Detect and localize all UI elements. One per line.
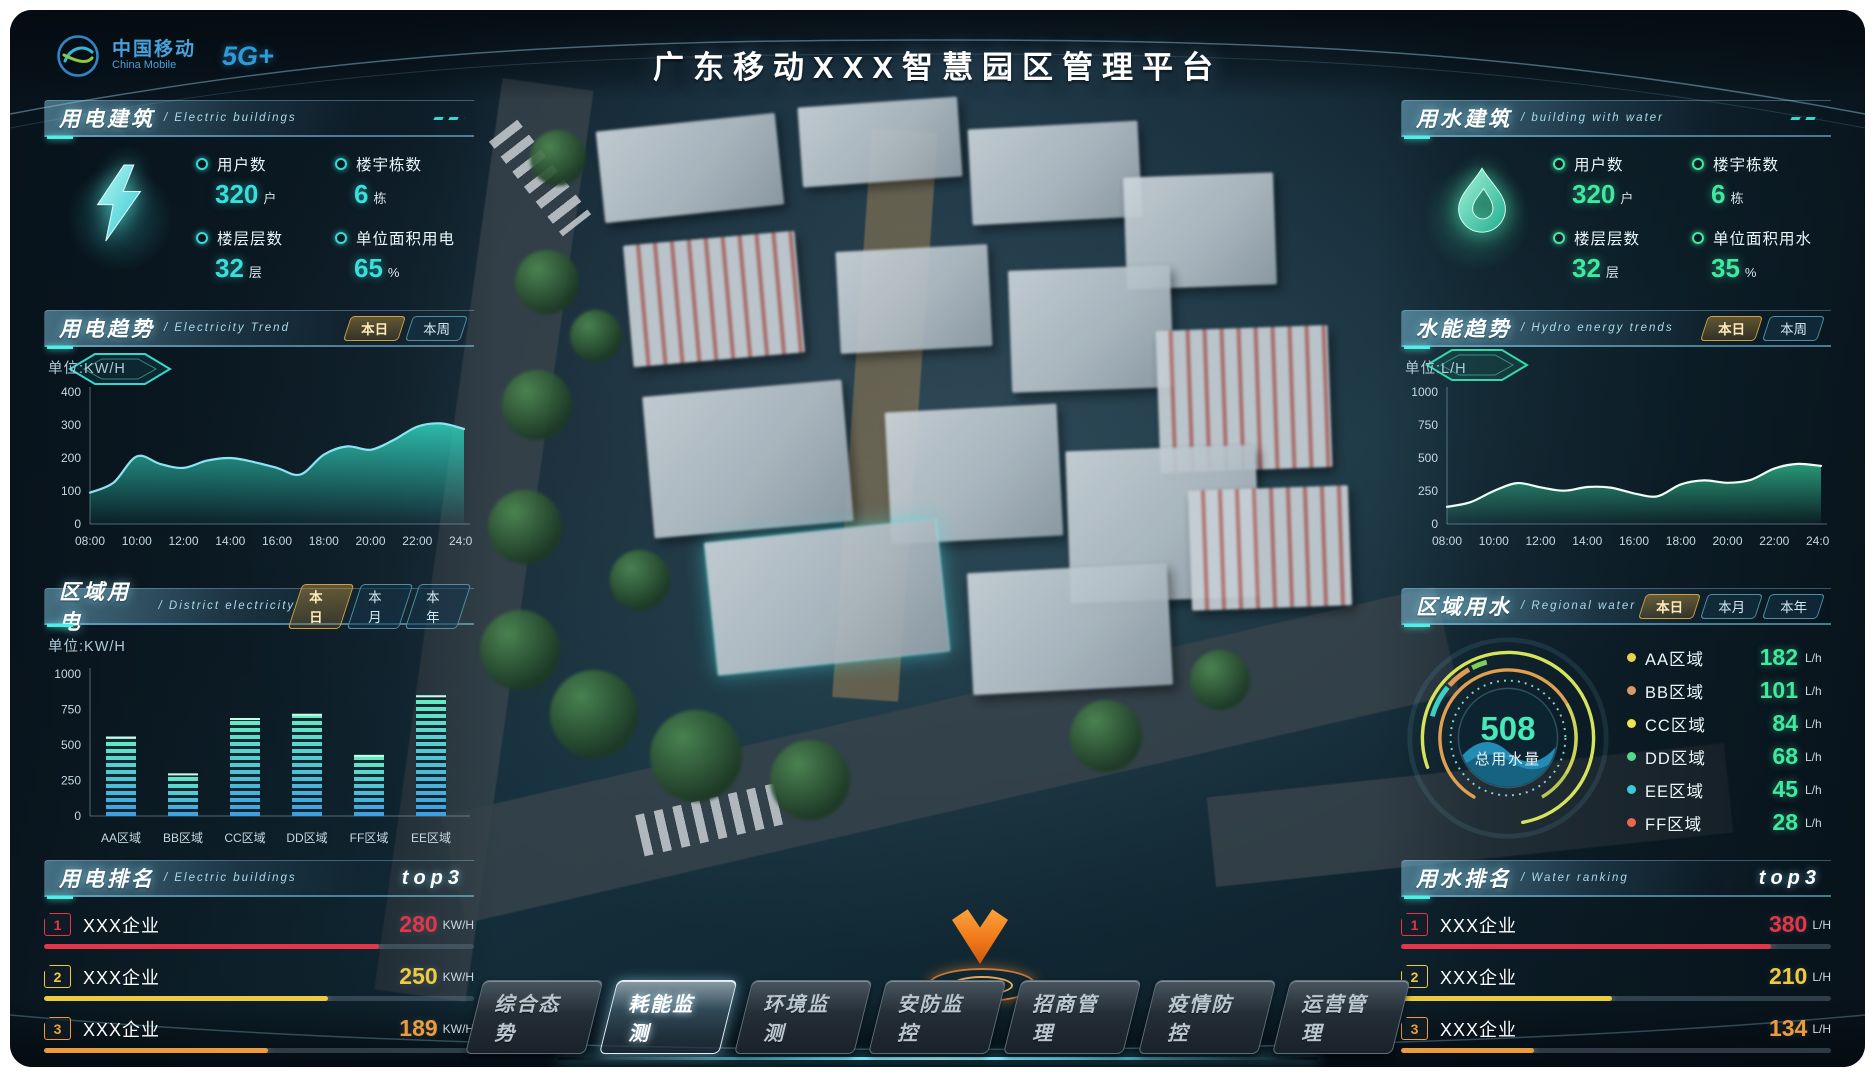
rank-bar-fill bbox=[44, 1048, 268, 1053]
svg-text:200: 200 bbox=[61, 451, 81, 465]
water-icon-3d bbox=[1401, 153, 1553, 285]
tab-group: 本日 本周 bbox=[347, 316, 464, 341]
building bbox=[1008, 265, 1174, 393]
tree bbox=[515, 250, 579, 314]
building bbox=[623, 231, 805, 368]
panel-title: 用水建筑 bbox=[1416, 103, 1512, 133]
dashboard: 中国移动 China Mobile 5G+ 广东移动XXX智慧园区管理平台 用电… bbox=[10, 10, 1865, 1067]
svg-text:20:00: 20:00 bbox=[355, 534, 385, 548]
tab-label: 本周 bbox=[423, 318, 450, 338]
svg-text:0: 0 bbox=[74, 809, 81, 823]
tree bbox=[550, 670, 638, 758]
svg-text:AA区域: AA区域 bbox=[101, 831, 141, 845]
svg-text:500: 500 bbox=[61, 738, 81, 752]
panel-subtitle: / Electric buildings bbox=[164, 872, 297, 884]
building bbox=[967, 563, 1173, 695]
unit-label: 单位:KW/H bbox=[48, 635, 474, 656]
tab-label: 本日 bbox=[1656, 596, 1683, 616]
svg-text:CC区域: CC区域 bbox=[224, 831, 265, 845]
nav-label: 运营管理 bbox=[1302, 988, 1382, 1046]
rank-badge: 3 bbox=[44, 1017, 71, 1040]
svg-text:16:00: 16:00 bbox=[262, 534, 292, 548]
legend-dot-icon bbox=[1627, 719, 1636, 728]
nav-security-monitoring[interactable]: 安防监控 bbox=[868, 980, 1006, 1054]
nav-investment-management[interactable]: 招商管理 bbox=[1003, 980, 1141, 1054]
svg-text:20:00: 20:00 bbox=[1712, 534, 1742, 548]
nav-label: 耗能监测 bbox=[628, 988, 708, 1046]
svg-text:14:00: 14:00 bbox=[215, 534, 245, 548]
brand-area: 中国移动 China Mobile 5G+ bbox=[56, 34, 274, 78]
ranking-row: 2 XXX企业 250 KW/H bbox=[44, 963, 474, 1001]
panel-water-building: 用水建筑 / building with water bbox=[1401, 100, 1831, 301]
svg-text:500: 500 bbox=[1418, 451, 1438, 465]
top3-badge: top3 bbox=[1759, 867, 1821, 890]
legend-dot-icon bbox=[1627, 818, 1636, 827]
nav-label: 安防监控 bbox=[898, 988, 978, 1046]
building bbox=[642, 380, 854, 539]
panel-subtitle: / District electricity bbox=[159, 600, 296, 612]
svg-text:400: 400 bbox=[61, 385, 81, 399]
svg-text:0: 0 bbox=[1431, 517, 1438, 531]
svg-text:250: 250 bbox=[61, 774, 81, 788]
svg-text:100: 100 bbox=[61, 484, 81, 498]
ranking-row: 1 XXX企业 380 L/H bbox=[1401, 911, 1831, 949]
rank-badge: 3 bbox=[1401, 1017, 1428, 1040]
5g-badge: 5G+ bbox=[222, 41, 274, 72]
footer-glow-line bbox=[558, 1057, 1318, 1060]
water-total-label: 总用水量 bbox=[1475, 751, 1541, 768]
rank-unit: L/H bbox=[1812, 918, 1831, 932]
tab-today[interactable]: 本日 bbox=[288, 584, 354, 629]
tab-week[interactable]: 本周 bbox=[405, 316, 468, 341]
panel-header: 用电趋势 / Electricity Trend 本日 本周 bbox=[44, 310, 474, 347]
bullet-icon bbox=[1553, 158, 1565, 170]
panel-header: 水能趋势 / Hydro energy trends 本日 本周 bbox=[1401, 310, 1831, 347]
legend-dot-icon bbox=[1627, 752, 1636, 761]
panel-title: 用电排名 bbox=[59, 863, 155, 893]
bullet-icon bbox=[1553, 232, 1565, 244]
tab-label: 本日 bbox=[309, 586, 333, 626]
building-highlighted bbox=[704, 518, 951, 676]
rank-value: 380 bbox=[1769, 911, 1807, 938]
stat-floors: 楼层层数 32层 bbox=[196, 227, 335, 284]
panel-title: 用电建筑 bbox=[59, 103, 155, 133]
svg-text:300: 300 bbox=[61, 418, 81, 432]
tree bbox=[610, 550, 670, 610]
hydro-trend-chart: 0250500750100008:0010:0012:0014:0016:001… bbox=[1401, 380, 1829, 550]
svg-text:FF区域: FF区域 bbox=[350, 831, 389, 845]
building bbox=[835, 244, 992, 354]
tab-year[interactable]: 本年 bbox=[405, 584, 471, 629]
svg-text:750: 750 bbox=[1418, 418, 1438, 432]
rank-bar-fill bbox=[1401, 944, 1771, 949]
rank-bar-fill bbox=[1401, 1048, 1534, 1053]
panel-header: 区域用水 / Regional water 本日 本月 本年 bbox=[1401, 588, 1831, 625]
rank-unit: KW/H bbox=[443, 918, 474, 932]
svg-text:BB区域: BB区域 bbox=[163, 831, 203, 845]
tab-week[interactable]: 本周 bbox=[1762, 316, 1825, 341]
stat-buildings: 楼宇栋数 6栋 bbox=[1692, 153, 1831, 210]
tab-month[interactable]: 本月 bbox=[346, 584, 412, 629]
rank-bar-fill bbox=[44, 944, 379, 949]
water-total-gauge: 508 总用水量 bbox=[1401, 631, 1615, 845]
rank-unit: L/H bbox=[1812, 970, 1831, 984]
building bbox=[1188, 485, 1352, 611]
rank-bar-fill bbox=[44, 996, 328, 1001]
ranking-row: 3 XXX企业 189 KW/H bbox=[44, 1015, 474, 1053]
svg-text:08:00: 08:00 bbox=[75, 534, 105, 548]
nav-label: 环境监测 bbox=[763, 988, 843, 1046]
rank-bar-track bbox=[44, 944, 474, 949]
page: 中国移动 China Mobile 5G+ 广东移动XXX智慧园区管理平台 用电… bbox=[0, 0, 1875, 1077]
svg-text:10:00: 10:00 bbox=[1479, 534, 1509, 548]
tab-today[interactable]: 本日 bbox=[1700, 316, 1763, 341]
building bbox=[968, 121, 1143, 226]
stat-floors: 楼层层数 32层 bbox=[1553, 227, 1692, 284]
panel-subtitle: / building with water bbox=[1521, 112, 1664, 124]
tree bbox=[650, 710, 742, 802]
company-name: XXX企业 bbox=[83, 964, 160, 990]
brand-name-cn: 中国移动 bbox=[112, 40, 196, 60]
tab-month[interactable]: 本月 bbox=[1700, 594, 1763, 619]
svg-text:DD区域: DD区域 bbox=[286, 831, 327, 845]
svg-text:12:00: 12:00 bbox=[168, 534, 198, 548]
svg-text:250: 250 bbox=[1418, 484, 1438, 498]
svg-text:16:00: 16:00 bbox=[1619, 534, 1649, 548]
tab-today[interactable]: 本日 bbox=[1638, 594, 1701, 619]
tab-label: 本年 bbox=[1780, 596, 1807, 616]
svg-text:24:00: 24:00 bbox=[1806, 534, 1829, 548]
legend-dot-icon bbox=[1627, 686, 1636, 695]
rank-value: 134 bbox=[1769, 1015, 1807, 1042]
company-name: XXX企业 bbox=[1440, 1016, 1517, 1042]
company-name: XXX企业 bbox=[83, 1016, 160, 1042]
tab-group: 本日 本周 bbox=[1704, 316, 1821, 341]
tab-group: 本日 本月 本年 bbox=[1642, 594, 1821, 619]
lightning-bolt-icon bbox=[86, 155, 152, 251]
tab-label: 本月 bbox=[368, 586, 392, 626]
panel-subtitle: / Regional water bbox=[1521, 600, 1636, 612]
tab-label: 本月 bbox=[1718, 596, 1745, 616]
tab-year[interactable]: 本年 bbox=[1762, 594, 1825, 619]
brand-name-en: China Mobile bbox=[112, 60, 196, 72]
panel-subtitle: / Water ranking bbox=[1521, 872, 1629, 884]
svg-text:750: 750 bbox=[61, 703, 81, 717]
panel-subtitle: / Electricity Trend bbox=[164, 322, 290, 334]
nav-label: 综合态势 bbox=[494, 988, 574, 1046]
panel-title: 区域用水 bbox=[1416, 591, 1512, 621]
stat-users: 用户数 320户 bbox=[1553, 153, 1692, 210]
panel-electric-building: 用电建筑 / Electric buildings bbox=[44, 100, 474, 301]
panel-header: 用电建筑 / Electric buildings bbox=[44, 100, 474, 137]
header-dashes bbox=[433, 117, 465, 120]
svg-text:08:00: 08:00 bbox=[1432, 534, 1462, 548]
page-title: 广东移动XXX智慧园区管理平台 bbox=[10, 42, 1865, 87]
panel-title: 用水排名 bbox=[1416, 863, 1512, 893]
panel-electricity-trend: 用电趋势 / Electricity Trend 本日 本周 单位:KW/H 0… bbox=[44, 310, 474, 550]
tab-today[interactable]: 本日 bbox=[343, 316, 406, 341]
legend-row: AA区域 182 L/h bbox=[1627, 641, 1831, 674]
nav-epidemic-prevention[interactable]: 疫情防控 bbox=[1138, 980, 1276, 1054]
nav-environment-monitoring[interactable]: 环境监测 bbox=[734, 980, 872, 1054]
panel-title: 用电趋势 bbox=[59, 313, 155, 343]
tree bbox=[1070, 700, 1142, 772]
svg-text:1000: 1000 bbox=[1411, 385, 1438, 399]
panel-water-ranking: 用水排名 / Water ranking top3 1 XXX企业 380 L/… bbox=[1401, 860, 1831, 1067]
company-name: XXX企业 bbox=[83, 912, 160, 938]
bullet-icon bbox=[1692, 158, 1704, 170]
tab-label: 本日 bbox=[1718, 318, 1745, 338]
legend-dot-icon bbox=[1627, 785, 1636, 794]
tab-label: 本年 bbox=[427, 586, 451, 626]
rank-bar-track bbox=[44, 1048, 474, 1053]
panel-title: 水能趋势 bbox=[1416, 313, 1512, 343]
bullet-icon bbox=[196, 232, 208, 244]
rank-value: 189 bbox=[399, 1015, 437, 1042]
unit-label: 单位:KW/H bbox=[48, 357, 474, 378]
header-dashes bbox=[1790, 117, 1822, 120]
rank-bar-track bbox=[44, 996, 474, 1001]
panel-header: 用水排名 / Water ranking top3 bbox=[1401, 860, 1831, 897]
nav-overall-situation[interactable]: 综合态势 bbox=[465, 980, 603, 1054]
panel-header: 区域用电 / District electricity 本日 本月 本年 bbox=[44, 588, 474, 625]
nav-label: 疫情防控 bbox=[1167, 988, 1247, 1046]
legend-row: EE区域 45 L/h bbox=[1627, 773, 1831, 806]
company-name: XXX企业 bbox=[1440, 964, 1517, 990]
ranking-row: 3 XXX企业 134 L/H bbox=[1401, 1015, 1831, 1053]
tree bbox=[502, 370, 572, 440]
stat-per-area-water: 单位面积用水 35% bbox=[1692, 227, 1831, 284]
rank-value: 280 bbox=[399, 911, 437, 938]
svg-text:18:00: 18:00 bbox=[1666, 534, 1696, 548]
rank-bar-track bbox=[1401, 944, 1831, 949]
panel-regional-water: 区域用水 / Regional water 本日 本月 本年 bbox=[1401, 588, 1831, 845]
stat-buildings: 楼宇栋数 6栋 bbox=[335, 153, 474, 210]
svg-text:22:00: 22:00 bbox=[402, 534, 432, 548]
unit-label: 单位:L/H bbox=[1405, 357, 1831, 378]
bottom-nav: 综合态势 耗能监测 环境监测 安防监控 招商管理 疫情防控 运营管理 bbox=[474, 980, 1402, 1054]
rank-value: 210 bbox=[1769, 963, 1807, 990]
tree bbox=[770, 740, 850, 820]
rank-badge: 1 bbox=[44, 913, 71, 936]
rank-bar-fill bbox=[1401, 996, 1612, 1001]
bullet-icon bbox=[335, 158, 347, 170]
svg-text:18:00: 18:00 bbox=[309, 534, 339, 548]
rank-unit: KW/H bbox=[443, 970, 474, 984]
panel-electricity-ranking: 用电排名 / Electric buildings top3 1 XXX企业 2… bbox=[44, 860, 474, 1067]
stat-users: 用户数 320户 bbox=[196, 153, 335, 210]
stat-per-area-electricity: 单位面积用电 65% bbox=[335, 227, 474, 284]
tab-label: 本日 bbox=[361, 318, 388, 338]
water-legend: AA区域 182 L/h BB区域 101 L/h CC区域 84 bbox=[1627, 641, 1831, 845]
nav-energy-monitoring[interactable]: 耗能监测 bbox=[599, 980, 737, 1054]
panel-subtitle: / Hydro energy trends bbox=[1521, 322, 1674, 334]
tree bbox=[530, 130, 586, 186]
bullet-icon bbox=[1692, 232, 1704, 244]
panel-header: 用电排名 / Electric buildings top3 bbox=[44, 860, 474, 897]
svg-text:14:00: 14:00 bbox=[1572, 534, 1602, 548]
tab-label: 本周 bbox=[1780, 318, 1807, 338]
top3-badge: top3 bbox=[402, 867, 464, 890]
panel-hydro-trend: 水能趋势 / Hydro energy trends 本日 本周 单位:L/H … bbox=[1401, 310, 1831, 550]
legend-dot-icon bbox=[1627, 653, 1636, 662]
svg-text:10:00: 10:00 bbox=[122, 534, 152, 548]
panel-title: 区域用电 bbox=[59, 576, 150, 636]
rank-badge: 1 bbox=[1401, 913, 1428, 936]
district-electricity-chart: 02505007501000AA区域BB区域CC区域DD区域FF区域EE区域 bbox=[44, 658, 472, 850]
svg-text:0: 0 bbox=[74, 517, 81, 531]
tree bbox=[570, 310, 622, 362]
nav-operations-management[interactable]: 运营管理 bbox=[1272, 980, 1410, 1054]
rank-badge: 2 bbox=[44, 965, 71, 988]
tree bbox=[1190, 650, 1250, 710]
nav-label: 招商管理 bbox=[1032, 988, 1112, 1046]
company-name: XXX企业 bbox=[1440, 912, 1517, 938]
arrow-down-icon bbox=[952, 888, 1008, 964]
rank-bar-track bbox=[1401, 996, 1831, 1001]
building bbox=[797, 97, 962, 188]
svg-text:EE区域: EE区域 bbox=[411, 831, 451, 845]
building bbox=[596, 113, 785, 223]
bullet-icon bbox=[196, 158, 208, 170]
svg-text:24:00: 24:00 bbox=[449, 534, 472, 548]
svg-text:1000: 1000 bbox=[54, 667, 81, 681]
rank-bar-track bbox=[1401, 1048, 1831, 1053]
ranking-row: 1 XXX企业 280 KW/H bbox=[44, 911, 474, 949]
panel-district-electricity: 区域用电 / District electricity 本日 本月 本年 单位:… bbox=[44, 588, 474, 850]
water-drop-icon bbox=[1443, 155, 1521, 247]
rank-unit: L/H bbox=[1812, 1022, 1831, 1036]
china-mobile-logo-icon bbox=[56, 34, 100, 78]
svg-text:12:00: 12:00 bbox=[1525, 534, 1555, 548]
legend-row: FF区域 28 L/h bbox=[1627, 806, 1831, 839]
legend-row: DD区域 68 L/h bbox=[1627, 740, 1831, 773]
tab-group: 本日 本月 本年 bbox=[295, 584, 464, 629]
panel-subtitle: / Electric buildings bbox=[164, 112, 297, 124]
svg-text:22:00: 22:00 bbox=[1759, 534, 1789, 548]
panel-header: 用水建筑 / building with water bbox=[1401, 100, 1831, 137]
legend-row: CC区域 84 L/h bbox=[1627, 707, 1831, 740]
ranking-row: 2 XXX企业 210 L/H bbox=[1401, 963, 1831, 1001]
legend-row: BB区域 101 L/h bbox=[1627, 674, 1831, 707]
electricity-trend-chart: 010020030040008:0010:0012:0014:0016:0018… bbox=[44, 380, 472, 550]
bullet-icon bbox=[335, 232, 347, 244]
lightning-icon-3d bbox=[44, 153, 196, 285]
rank-value: 250 bbox=[399, 963, 437, 990]
water-total-value: 508 bbox=[1480, 711, 1535, 748]
